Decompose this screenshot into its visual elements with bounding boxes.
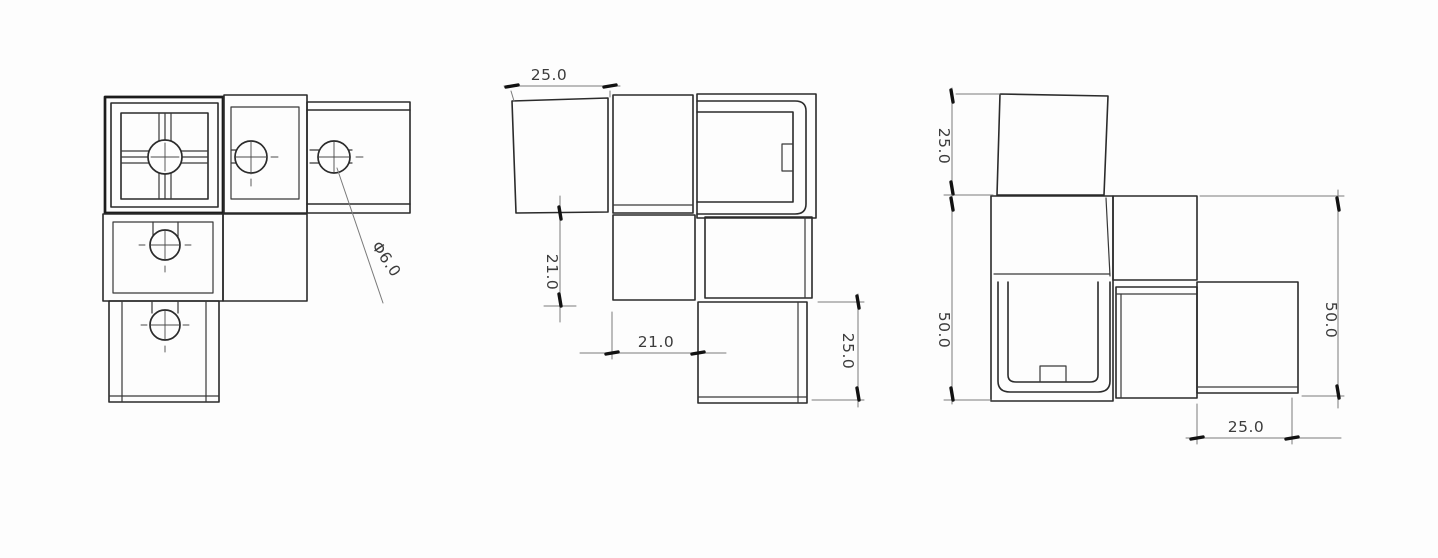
dim-plan-bottom-width: 21.0 bbox=[580, 312, 726, 359]
side-right-tube bbox=[1197, 282, 1298, 393]
side-face-mid bbox=[1113, 196, 1197, 280]
dim-side-left-height: 50.0 bbox=[935, 195, 991, 404]
front-tube-bottom bbox=[109, 301, 219, 402]
dim-plan-right-height: 25.0 bbox=[812, 294, 864, 407]
dim-label-plan-bottom-width: 21.0 bbox=[638, 333, 675, 351]
front-socket-top-middle bbox=[224, 95, 307, 213]
side-channel-socket bbox=[991, 196, 1113, 401]
dim-side-top-height: 25.0 bbox=[935, 88, 1000, 195]
dim-label-plan-right-height: 25.0 bbox=[839, 333, 857, 370]
dim-plan-top-width: 25.0 bbox=[504, 66, 620, 101]
plan-face-top-middle bbox=[613, 95, 693, 213]
dim-side-bottom-width: 25.0 bbox=[1186, 398, 1341, 444]
dim-label-side-right-height: 50.0 bbox=[1322, 302, 1340, 339]
front-socket-mid-left bbox=[103, 214, 223, 301]
side-channel-tab bbox=[1040, 366, 1066, 382]
dim-plan-left-height: 21.0 bbox=[543, 196, 576, 322]
side-face-below-mid bbox=[1116, 287, 1197, 398]
side-view: 25.0 50.0 50.0 25.0 bbox=[935, 88, 1344, 444]
hole-diameter-callout: Φ6.0 bbox=[337, 168, 404, 303]
plan-channel-socket bbox=[697, 94, 816, 218]
plan-channel-tab bbox=[782, 144, 793, 171]
dim-label-side-left-height: 50.0 bbox=[935, 312, 953, 349]
side-top-tube bbox=[997, 94, 1108, 195]
front-tube-right bbox=[307, 102, 410, 213]
dim-side-right-height: 50.0 bbox=[1200, 190, 1344, 408]
front-face-mid-right bbox=[223, 214, 307, 301]
dim-label-plan-top-width: 25.0 bbox=[531, 66, 568, 84]
dim-label-side-bottom-width: 25.0 bbox=[1228, 418, 1265, 436]
front-view: Φ6.0 bbox=[103, 95, 410, 402]
plan-face-mid-right bbox=[705, 217, 812, 298]
plan-face-mid bbox=[613, 215, 695, 300]
drawing-canvas: Φ6.0 bbox=[0, 0, 1438, 558]
dim-label-side-top-height: 25.0 bbox=[935, 128, 953, 165]
plan-view: 25.0 21.0 21.0 25.0 bbox=[504, 66, 864, 407]
front-socket-top-left bbox=[105, 97, 223, 213]
drawing-sheet: Φ6.0 bbox=[0, 0, 1438, 558]
dim-label-plan-left-height: 21.0 bbox=[543, 254, 561, 291]
